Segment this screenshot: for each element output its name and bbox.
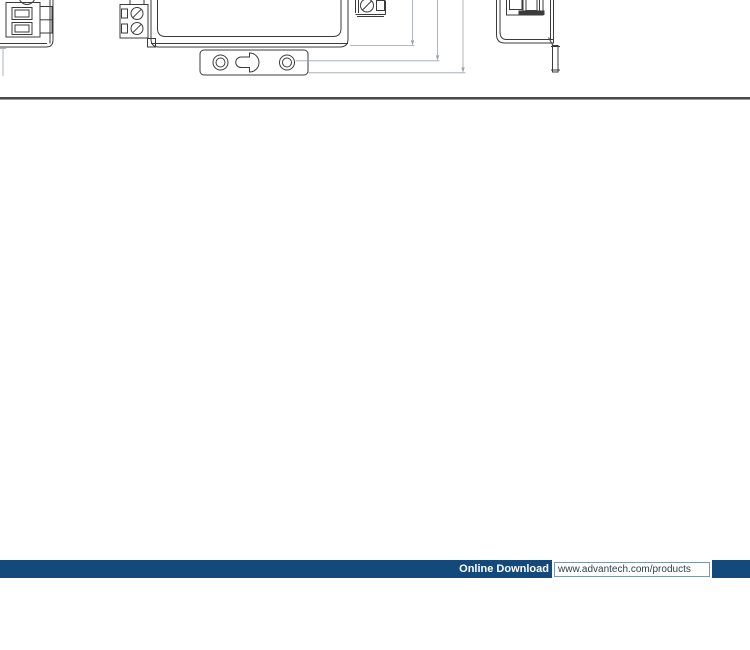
section-divider	[0, 97, 750, 100]
online-download-label: Online Download	[459, 560, 549, 578]
mounting-plate	[200, 50, 308, 75]
dimension-drawing-svg	[0, 0, 750, 96]
product-dimension-drawing	[0, 0, 750, 96]
keyhole-slot	[236, 53, 259, 72]
screw-terminal-left	[120, 0, 148, 38]
terminal-block-left-view	[6, 3, 52, 38]
download-url-link[interactable]: www.advantech.com/products	[558, 564, 691, 575]
screw-terminal-right	[356, 0, 386, 17]
datasheet-page: Online Download www.advantech.com/produc…	[0, 0, 750, 650]
front-view	[120, 0, 386, 75]
terminal-block-right-view	[507, 0, 545, 15]
side-view-right	[497, 0, 561, 72]
side-view-left	[0, 0, 53, 76]
download-url-box: www.advantech.com/products	[554, 562, 710, 577]
footer-bar: Online Download www.advantech.com/produc…	[0, 560, 750, 578]
